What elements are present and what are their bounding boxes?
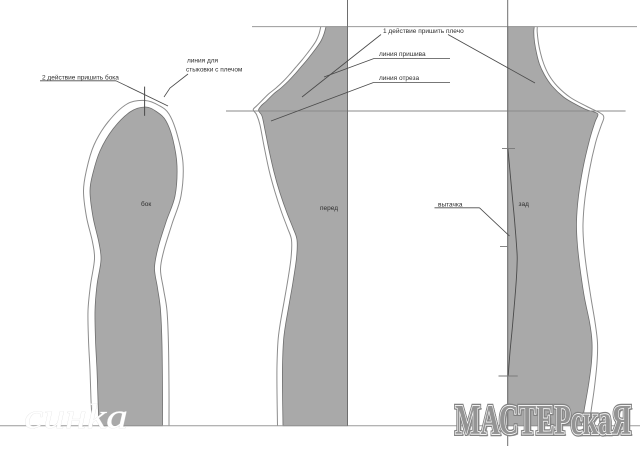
svg-text:перед: перед: [320, 205, 338, 212]
svg-text:МАСТЕРскаЯ: МАСТЕРскаЯ: [455, 398, 631, 444]
svg-text:бок: бок: [141, 200, 151, 208]
svg-text:1 действие пришить плечо: 1 действие пришить плечо: [383, 27, 464, 35]
svg-text:стыковки с плечом: стыковки с плечом: [186, 67, 243, 74]
svg-text:линия для: линия для: [187, 58, 219, 65]
svg-text:2 действие пришить бока: 2 действие пришить бока: [42, 74, 119, 82]
svg-text:линия пришива: линия пришива: [379, 51, 426, 58]
svg-text:синkа: синkа: [24, 397, 128, 436]
svg-text:зад: зад: [519, 201, 530, 208]
svg-text:линия отреза: линия отреза: [379, 75, 419, 82]
